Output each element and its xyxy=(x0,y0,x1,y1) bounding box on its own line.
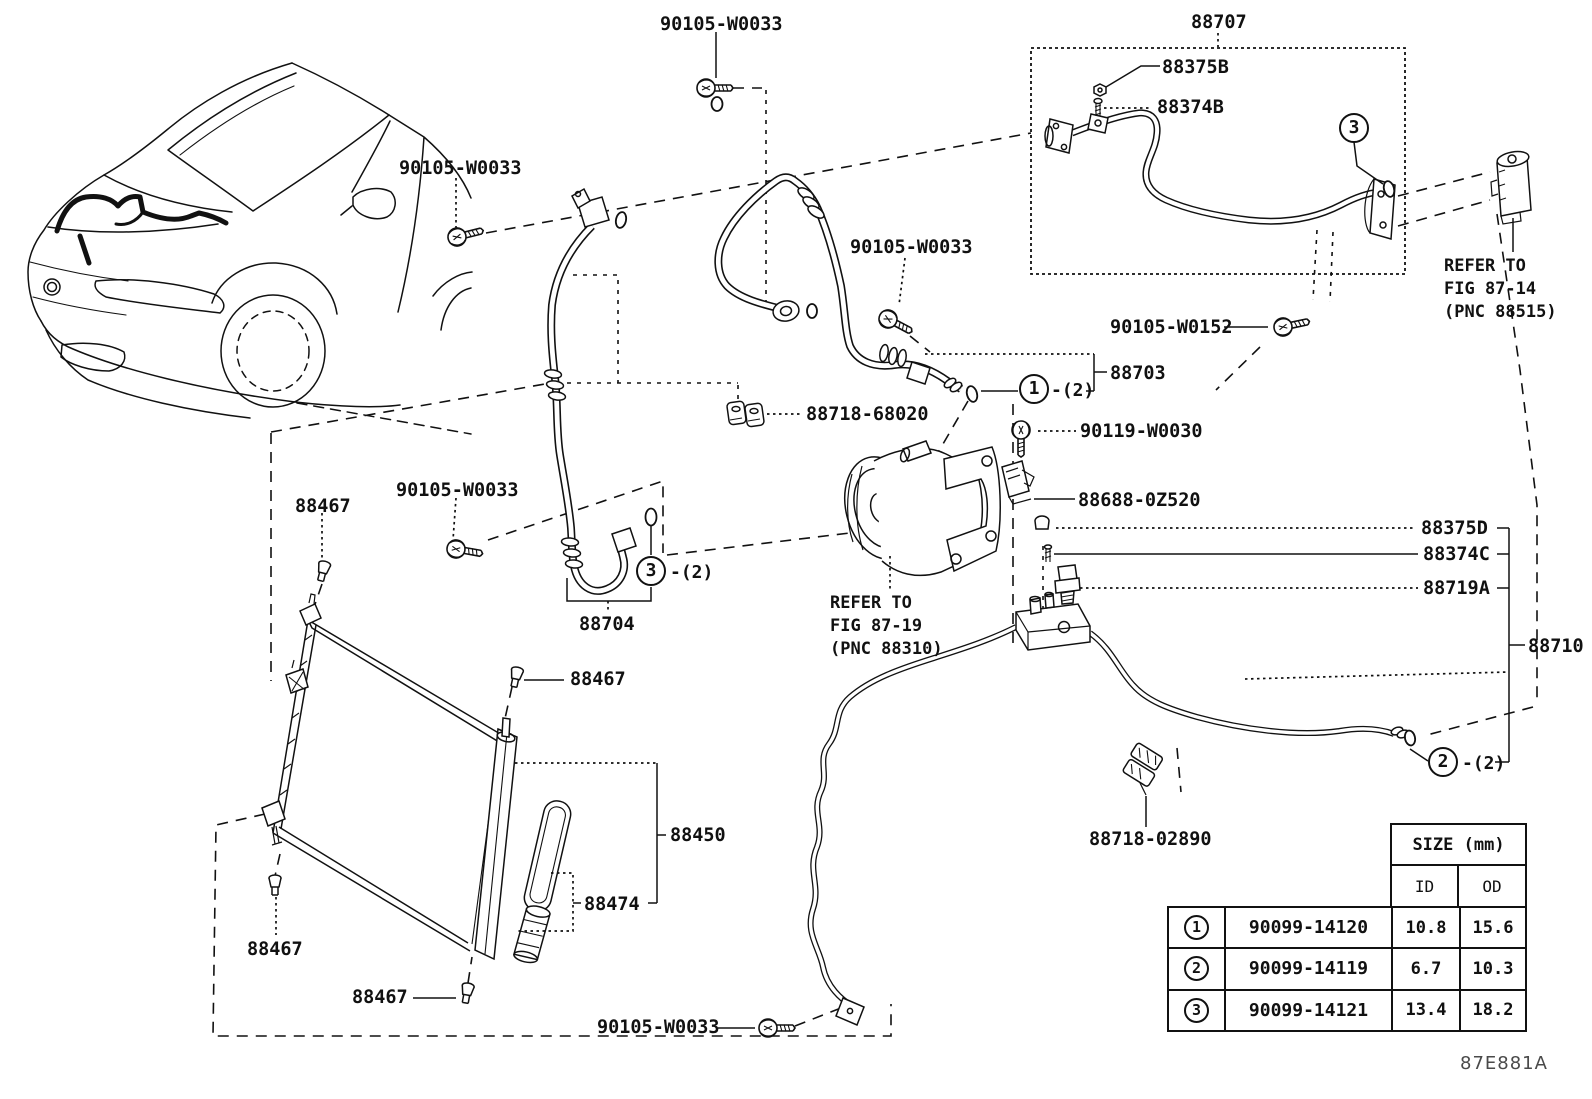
clip-icon xyxy=(315,560,331,582)
size-table: SIZE (mm) ID OD 1 90099-14120 10.8 15.6 … xyxy=(1167,823,1527,1032)
part-number-label: 88467 xyxy=(352,988,408,1007)
part-number-label: 90105-W0033 xyxy=(850,238,973,257)
assembly-box-88707 xyxy=(1031,48,1531,274)
bolt-icon xyxy=(759,1019,795,1037)
refer-note-fig-87-14: REFER TO FIG 87-14 (PNC 88515) xyxy=(1444,255,1557,324)
part-number-label: 88374B xyxy=(1157,98,1224,117)
callout-3-qty: -(2) xyxy=(670,562,713,583)
bolt-icon xyxy=(1272,313,1311,338)
parts-diagram-page: 90105-W0033 88707 88375B 88374B 90105-W0… xyxy=(0,0,1592,1099)
part-number-label: 90105-W0152 xyxy=(1110,318,1233,337)
row-id-value: 10.8 xyxy=(1391,908,1459,947)
refer-note-line: FIG 87-19 xyxy=(830,615,943,638)
size-table-row: 2 90099-14119 6.7 10.3 xyxy=(1169,947,1525,988)
callout-badge: 2 xyxy=(1184,956,1209,981)
row-od-value: 18.2 xyxy=(1459,991,1525,1030)
callout-2-qty: -(2) xyxy=(1462,753,1505,774)
part-number-label: 90119-W0030 xyxy=(1080,422,1203,441)
row-callout: 3 xyxy=(1169,991,1224,1030)
callout-badge: 3 xyxy=(1184,998,1209,1023)
drawing-code: 87E881A xyxy=(1460,1053,1548,1074)
part-number-label: 90105-W0033 xyxy=(597,1018,720,1037)
clip-icon xyxy=(459,982,474,1004)
part-number-label: 90105-W0033 xyxy=(660,15,783,34)
refer-note-line: (PNC 88515) xyxy=(1444,301,1557,324)
size-table-title: SIZE (mm) xyxy=(1390,823,1527,866)
cap-88375d-icon xyxy=(1035,516,1049,529)
part-number-label: 88704 xyxy=(579,615,635,634)
bolt-icon xyxy=(1012,421,1030,457)
part-number-label: 88718-68020 xyxy=(806,405,929,424)
fastener-icons xyxy=(269,79,1311,1037)
car-illustration xyxy=(28,63,472,434)
callout-badge: 1 xyxy=(1184,915,1209,940)
row-id-value: 13.4 xyxy=(1391,991,1459,1030)
size-table-row: 3 90099-14121 13.4 18.2 xyxy=(1169,989,1525,1030)
row-id-value: 6.7 xyxy=(1391,949,1459,988)
part-number-label: 88467 xyxy=(247,940,303,959)
row-part-number: 90099-14119 xyxy=(1224,949,1391,988)
callout-1: 1 xyxy=(1019,374,1049,404)
size-table-id-header: ID xyxy=(1390,864,1459,908)
part-number-label: 88710 xyxy=(1528,637,1584,656)
part-number-label: 88467 xyxy=(570,670,626,689)
part-number-label: 88719A xyxy=(1423,579,1490,598)
size-table-body: 1 90099-14120 10.8 15.6 2 90099-14119 6.… xyxy=(1167,906,1527,1032)
callout-1-qty: -(2) xyxy=(1051,380,1094,401)
refer-note-fig-87-19: REFER TO FIG 87-19 (PNC 88310) xyxy=(830,592,943,661)
refer-note-line: FIG 87-14 xyxy=(1444,278,1557,301)
bolt-icon xyxy=(697,79,733,97)
part-number-label: 90105-W0033 xyxy=(396,481,519,500)
bolt-icon xyxy=(876,307,916,340)
refer-note-line: REFER TO xyxy=(830,592,943,615)
pipe-clamp-88718-68020-icon xyxy=(727,401,765,427)
bolt-icon xyxy=(446,539,485,563)
clip-icon xyxy=(508,666,524,688)
part-number-label: 90105-W0033 xyxy=(399,159,522,178)
part-number-label: 88375B xyxy=(1162,58,1229,77)
size-table-od-header: OD xyxy=(1457,864,1527,908)
pipe-clamp-88718-02890-icon xyxy=(1120,742,1165,787)
part-number-label: 88703 xyxy=(1110,364,1166,383)
row-od-value: 15.6 xyxy=(1459,908,1525,947)
hose-88704 xyxy=(544,97,722,591)
row-part-number: 90099-14121 xyxy=(1224,991,1391,1030)
refer-note-line: REFER TO xyxy=(1444,255,1557,278)
part-number-label: 88474 xyxy=(584,895,640,914)
condenser-assembly xyxy=(262,594,573,965)
callout-3-box: 3 xyxy=(1339,113,1369,143)
part-number-label: 88688-0Z520 xyxy=(1078,491,1201,510)
bracket-88688-icon xyxy=(1002,461,1029,497)
part-number-label: 88450 xyxy=(670,826,726,845)
part-number-label: 88467 xyxy=(295,497,351,516)
row-callout: 1 xyxy=(1169,908,1224,947)
part-number-label: 88707 xyxy=(1191,13,1247,32)
row-part-number: 90099-14120 xyxy=(1224,908,1391,947)
refer-note-line: (PNC 88310) xyxy=(830,638,943,661)
callout-2: 2 xyxy=(1428,747,1458,777)
row-callout: 2 xyxy=(1169,949,1224,988)
hose-88703 xyxy=(718,177,979,427)
part-number-label: 88375D xyxy=(1421,519,1488,538)
compressor-illustration xyxy=(834,441,1000,575)
callout-3-mid: 3 xyxy=(636,556,666,586)
size-table-row: 1 90099-14120 10.8 15.6 xyxy=(1169,908,1525,947)
clip-icon xyxy=(269,875,281,895)
part-number-label: 88374C xyxy=(1423,545,1490,564)
bolt-icon xyxy=(446,222,485,248)
row-od-value: 10.3 xyxy=(1459,949,1525,988)
